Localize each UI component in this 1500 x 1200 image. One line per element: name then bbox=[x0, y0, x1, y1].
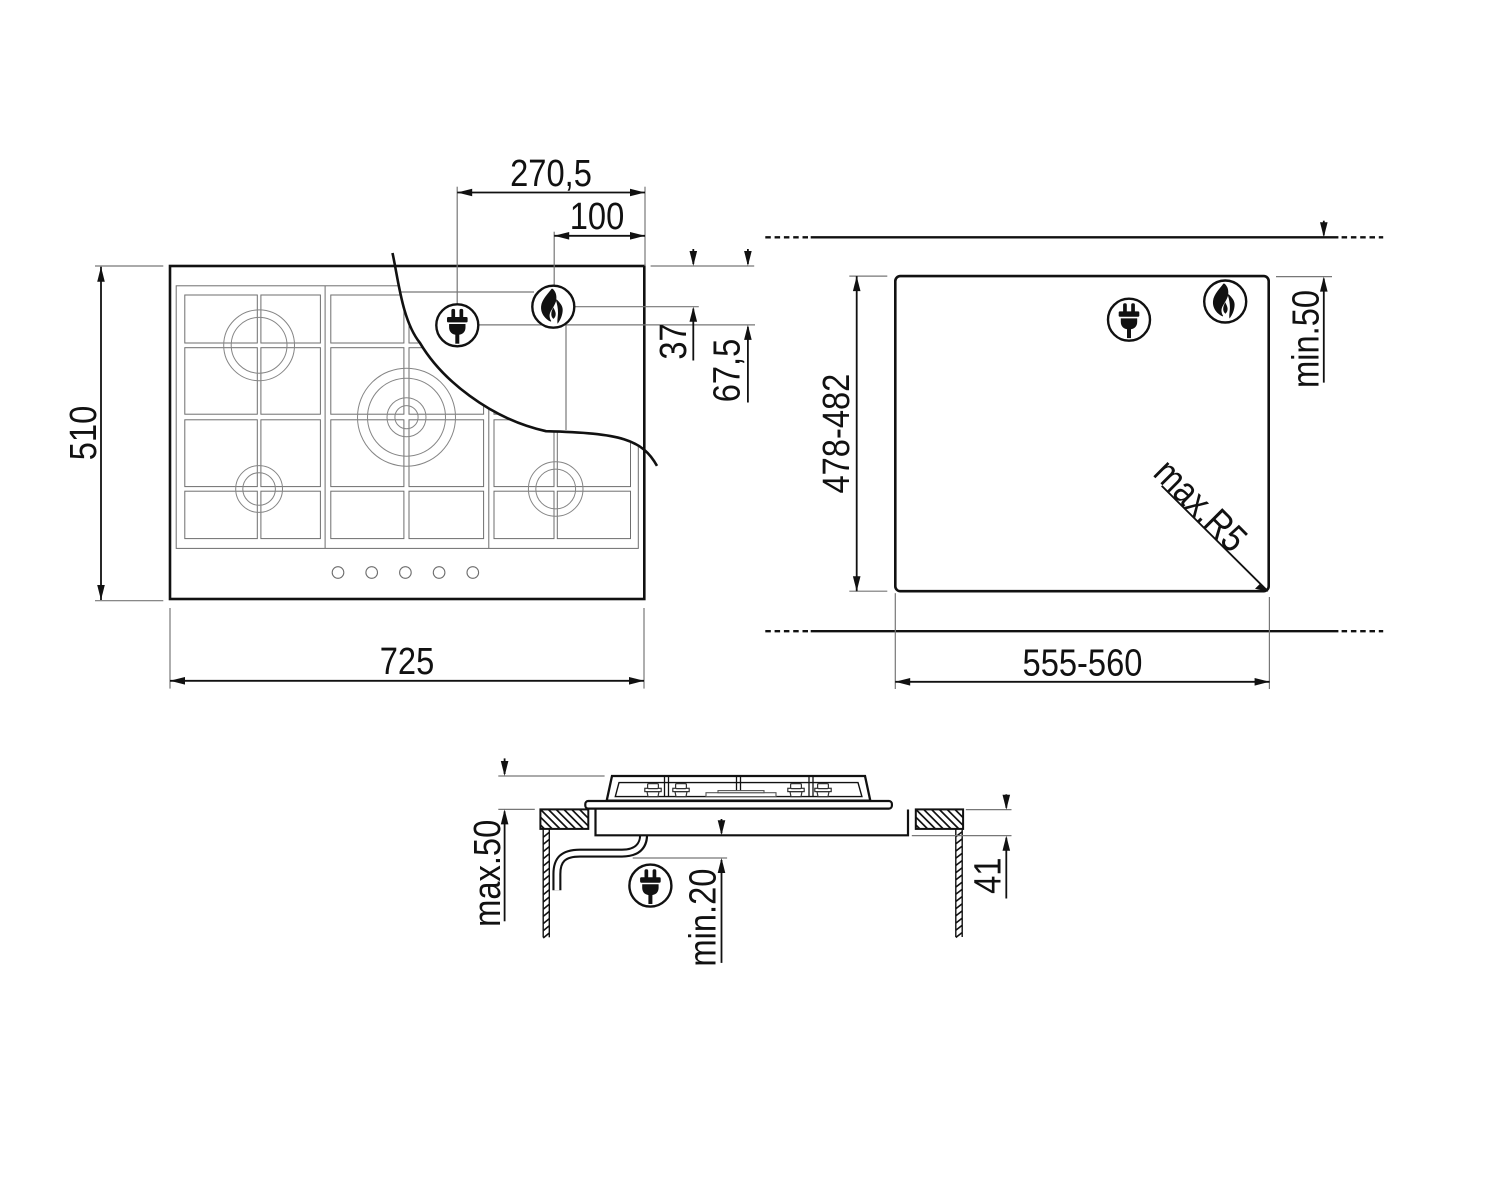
svg-text:555-560: 555-560 bbox=[1023, 641, 1143, 684]
svg-text:100: 100 bbox=[570, 195, 625, 238]
svg-text:510: 510 bbox=[62, 406, 105, 461]
svg-text:478-482: 478-482 bbox=[815, 374, 858, 494]
svg-text:max.50: max.50 bbox=[466, 820, 509, 927]
svg-text:270,5: 270,5 bbox=[510, 152, 592, 195]
svg-text:725: 725 bbox=[380, 640, 435, 683]
svg-text:min.50: min.50 bbox=[1284, 290, 1327, 388]
svg-text:41: 41 bbox=[966, 858, 1009, 894]
svg-text:67,5: 67,5 bbox=[705, 339, 748, 403]
svg-text:37: 37 bbox=[652, 323, 695, 359]
svg-text:min.20: min.20 bbox=[681, 869, 724, 967]
